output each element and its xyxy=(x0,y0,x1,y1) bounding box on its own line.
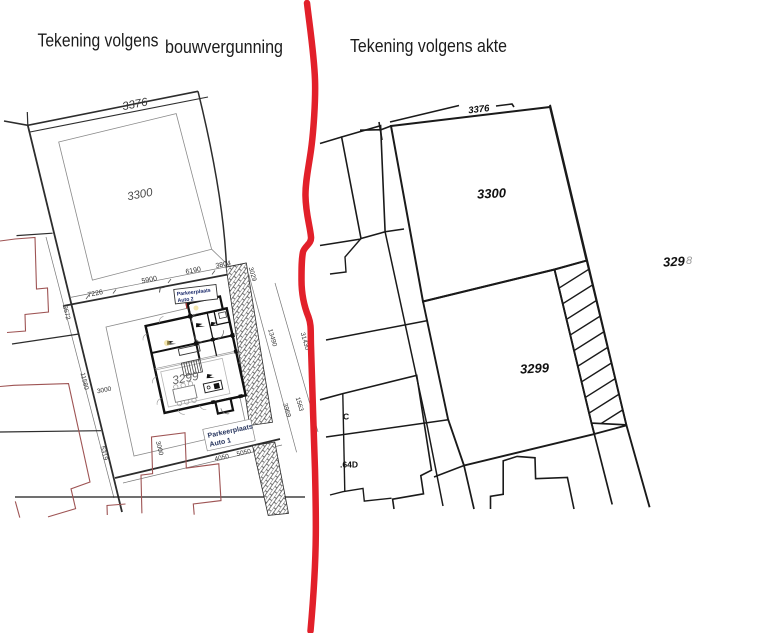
svg-text:Tekening volgens akte: Tekening volgens akte xyxy=(350,35,507,56)
svg-text:329: 329 xyxy=(663,253,686,269)
svg-text:bouwvergunning: bouwvergunning xyxy=(165,36,283,57)
svg-text:.64D: .64D xyxy=(340,460,358,470)
svg-text:3300: 3300 xyxy=(477,185,507,202)
svg-text:3376: 3376 xyxy=(468,103,491,116)
svg-text:8: 8 xyxy=(686,255,693,267)
svg-text:Tekening volgens: Tekening volgens xyxy=(38,30,159,51)
svg-text:3299: 3299 xyxy=(520,360,550,377)
svg-text:C: C xyxy=(343,412,349,422)
